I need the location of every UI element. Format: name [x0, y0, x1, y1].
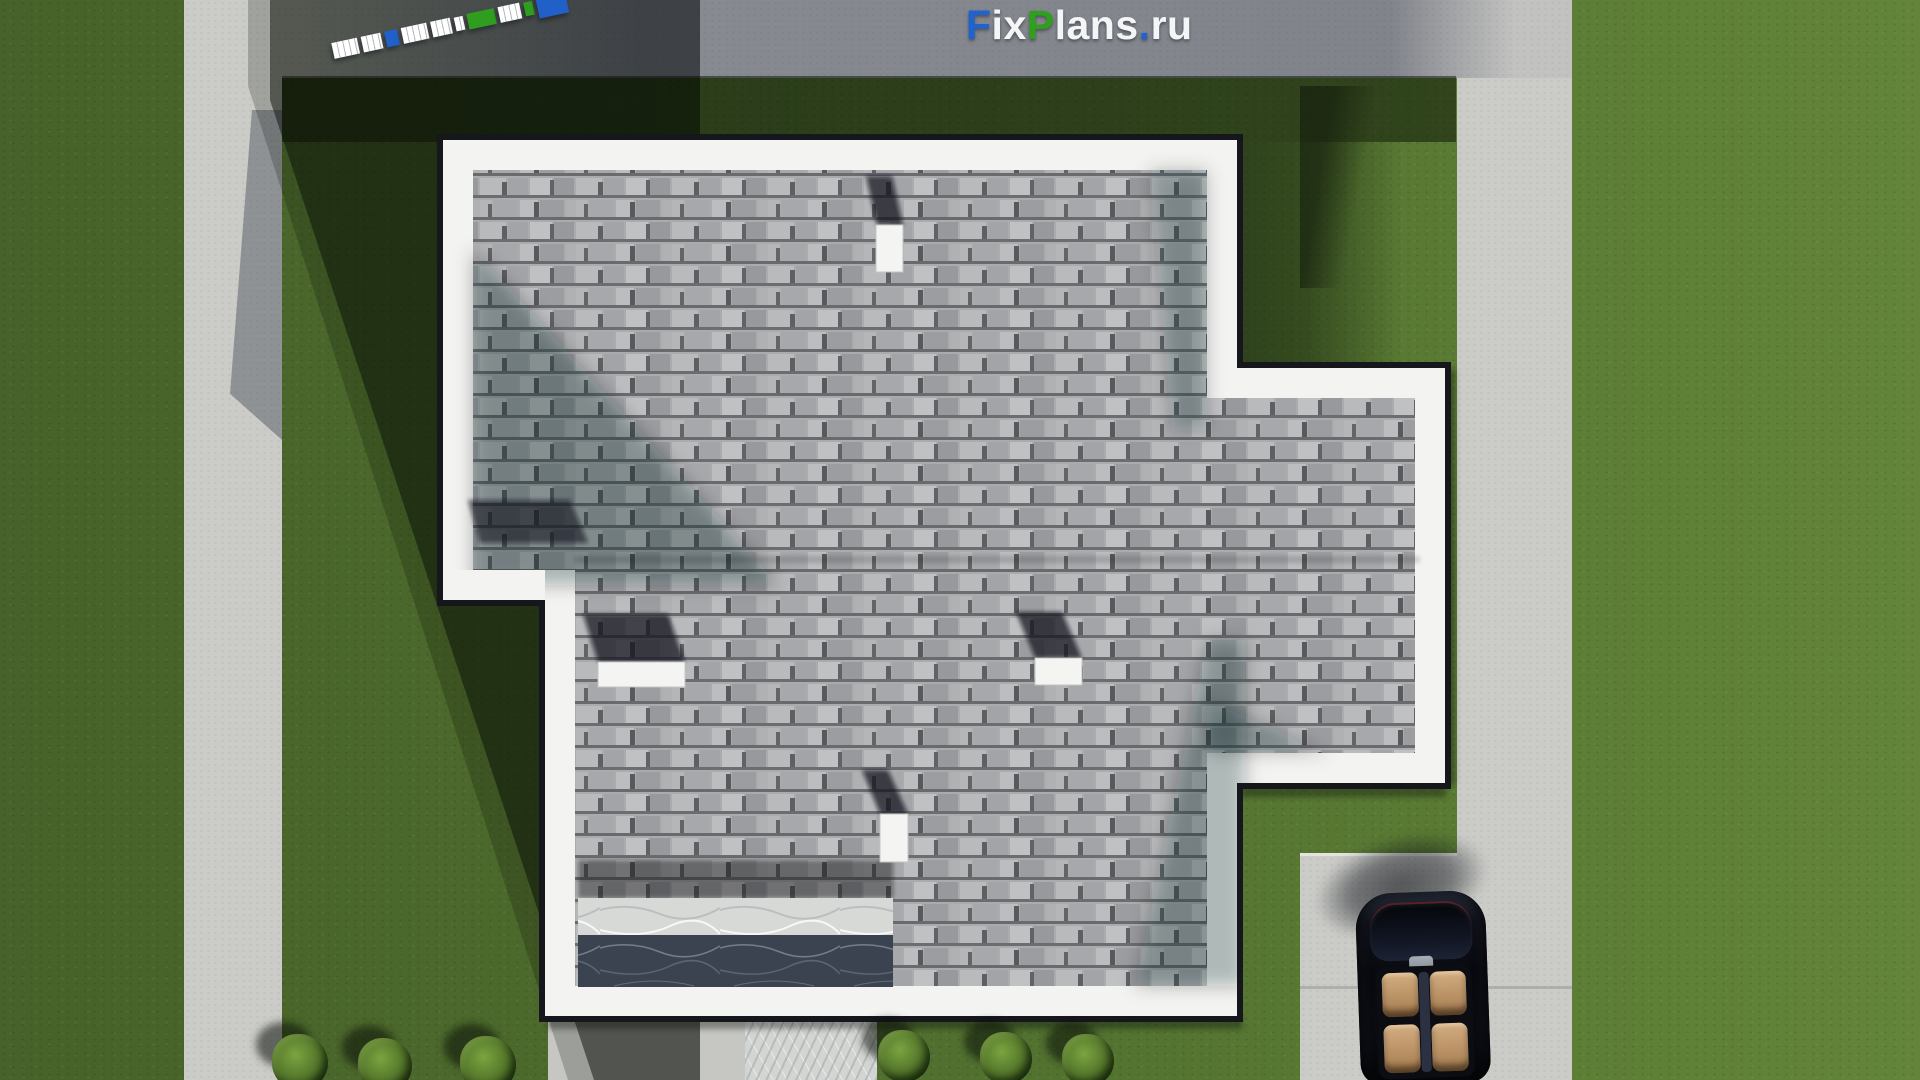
- step-shadow: [468, 500, 588, 543]
- ridge-line: [575, 556, 1420, 563]
- logo-watermark: FixPlans.ru: [966, 2, 1193, 49]
- scale-bar-segment: [523, 1, 535, 17]
- car-seat: [1429, 971, 1467, 1016]
- chimney: [880, 814, 908, 862]
- bush-foliage: [980, 1032, 1032, 1080]
- logo-part: P: [1027, 2, 1055, 48]
- chimney: [598, 662, 685, 687]
- bush: [460, 1036, 516, 1080]
- roof-plan: [0, 0, 1920, 1080]
- logo-part: ix: [992, 2, 1027, 48]
- car: [1355, 890, 1492, 1080]
- bush-foliage: [1062, 1034, 1114, 1080]
- site-plan-scene: FixPlans.ru: [0, 0, 1920, 1080]
- scale-bar-segment: [430, 18, 453, 38]
- car-seat: [1381, 972, 1419, 1017]
- car-seat: [1383, 1024, 1421, 1073]
- car-seat: [1431, 1022, 1469, 1071]
- logo-part: lans: [1055, 2, 1139, 48]
- logo-part: ru: [1151, 2, 1193, 48]
- scale-bar-segment: [384, 29, 400, 47]
- terrace-shadow-band: [578, 860, 893, 898]
- logo-part: .: [1139, 2, 1151, 48]
- chimney: [1035, 658, 1082, 685]
- bush: [272, 1034, 328, 1080]
- bush: [1062, 1034, 1114, 1080]
- bush-foliage: [358, 1038, 412, 1080]
- chimney-shadow: [583, 614, 685, 662]
- car-cabin: [1375, 964, 1475, 1079]
- bush: [980, 1032, 1032, 1080]
- bush: [878, 1030, 930, 1080]
- scale-bar-segment: [497, 3, 522, 23]
- scale-bar-segment: [454, 16, 466, 32]
- bush: [358, 1038, 412, 1080]
- scale-bar-segment: [331, 38, 360, 59]
- scale-bar-segment: [361, 33, 384, 53]
- terrace-marble-light: [578, 898, 893, 935]
- logo-part: F: [966, 2, 992, 48]
- bush-foliage: [460, 1036, 516, 1080]
- terrace-marble-shadow: [578, 935, 893, 987]
- bush-foliage: [272, 1034, 328, 1080]
- car-rear-window: [1369, 902, 1473, 962]
- bush-foliage: [878, 1030, 930, 1080]
- scale-bar-segment: [466, 8, 497, 30]
- chimney: [876, 225, 903, 272]
- scale-bar-segment: [401, 23, 430, 44]
